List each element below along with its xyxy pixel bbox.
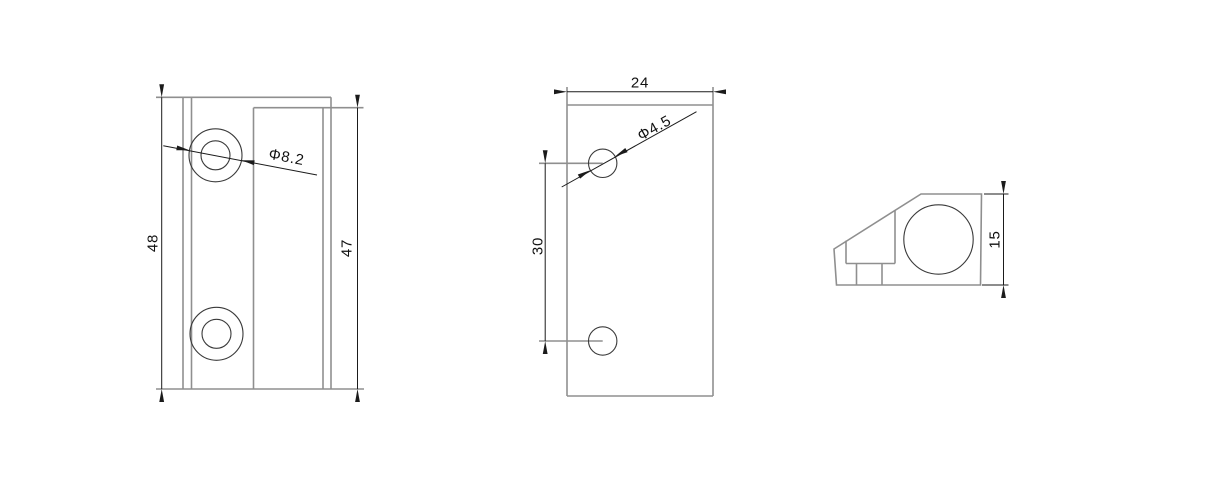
dim-width-label: 24 <box>631 75 649 92</box>
end-view: 15 <box>834 194 1009 285</box>
end-bore-circle <box>904 205 973 274</box>
end-view-detail-lines <box>846 210 895 285</box>
dim-hole-spacing-label: 30 <box>530 237 547 255</box>
front-hole-arrow-right <box>241 158 255 165</box>
hole-center-extension-lines <box>539 163 603 341</box>
front-hole-callout-label: Φ8.2 <box>267 146 306 169</box>
dim-width: 24 <box>567 75 713 92</box>
side-hole-callout: Φ4.5 <box>562 112 697 187</box>
dim-thickness: 15 <box>982 194 1009 285</box>
dim-thickness-label: 15 <box>987 230 1004 248</box>
front-bottom-hole-inner <box>202 319 231 348</box>
dim-inner-height-label: 47 <box>339 239 356 257</box>
technical-drawing-canvas: 48 47 Φ8.2 24 <box>0 0 1212 479</box>
dim-overall-height: 48 <box>145 97 162 389</box>
side-view: 24 30 Φ4.5 <box>530 75 714 397</box>
front-view: 48 47 Φ8.2 <box>145 97 365 389</box>
front-hole-callout: Φ8.2 <box>163 146 317 175</box>
dim-inner-height: 47 <box>339 108 358 389</box>
dim-overall-height-label: 48 <box>145 234 162 252</box>
dim-hole-spacing: 30 <box>530 163 547 341</box>
front-bottom-hole-outer <box>190 307 243 360</box>
front-view-outline <box>156 97 364 389</box>
side-hole-callout-label: Φ4.5 <box>635 112 675 144</box>
